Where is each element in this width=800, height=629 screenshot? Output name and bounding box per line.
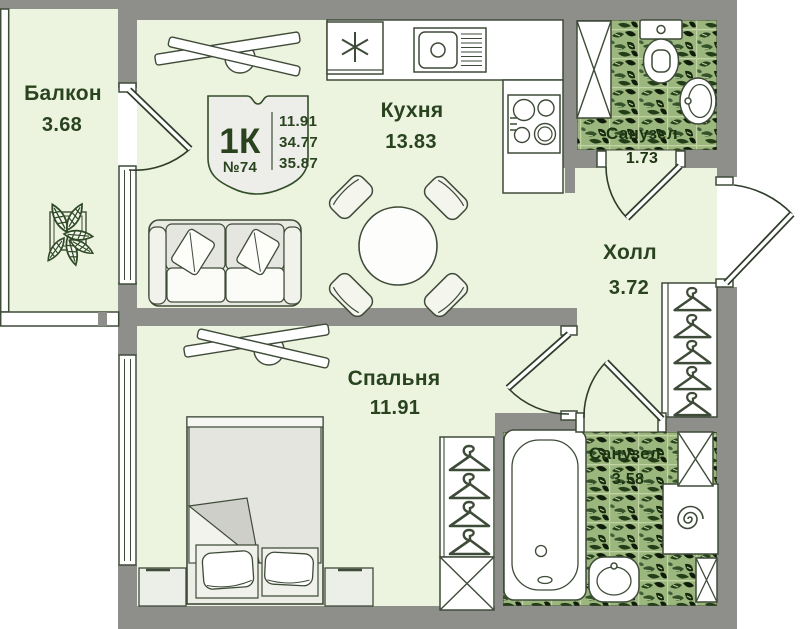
crossed-box-icon <box>696 558 717 602</box>
living-window <box>119 166 136 284</box>
bedroom-area: 11.91 <box>370 397 420 419</box>
bathroom-area: 3.58 <box>612 471 644 488</box>
fridge-icon <box>327 22 383 74</box>
bathtub <box>504 430 586 600</box>
badge-unit-type: 1К <box>219 122 261 161</box>
bedroom-window <box>119 355 136 565</box>
bedroom-label: Спальня <box>348 367 441 390</box>
nightstand-left <box>139 568 186 606</box>
badge-apt-area: 34.77 <box>279 134 318 151</box>
wc-label: Санузел <box>606 124 678 143</box>
badge-total-area: 35.87 <box>279 155 318 172</box>
bedroom-wardrobe <box>440 437 494 610</box>
kitchen-label: Кухня <box>381 99 444 122</box>
bathroom-sink <box>589 557 639 602</box>
washing-machine <box>663 484 718 554</box>
wc-area: 1.73 <box>626 150 658 167</box>
bed <box>187 417 323 604</box>
balcony-label: Балкон <box>24 82 102 105</box>
toilet <box>640 20 682 83</box>
badge-unit-number: №74 <box>223 159 258 176</box>
nightstand-right <box>325 568 373 606</box>
pillow <box>202 550 254 589</box>
ventilation-shaft-icon <box>577 21 611 118</box>
sofa <box>149 220 301 306</box>
kitchen-sink <box>414 28 486 72</box>
entrance-door <box>726 185 792 283</box>
balcony-floor <box>9 9 118 314</box>
crossed-box-icon <box>678 432 713 486</box>
balcony-area: 3.68 <box>42 114 82 136</box>
round-table <box>359 207 437 285</box>
hall-label: Холл <box>603 241 657 264</box>
floor-plan: Балкон 3.68 Кухня 13.83 Холл 3.72 Спальн… <box>0 0 800 629</box>
hall-area: 3.72 <box>609 277 649 299</box>
crossed-box-icon <box>440 557 494 610</box>
badge-living-area: 11.91 <box>279 113 317 130</box>
wc-sink <box>680 78 716 124</box>
bathroom-label: Санузел <box>589 444 661 463</box>
balcony-glazing-left <box>1 9 9 312</box>
pillow <box>264 552 314 586</box>
kitchen-area: 13.83 <box>385 131 437 153</box>
hall-wardrobe <box>662 283 717 417</box>
stove <box>508 95 560 153</box>
